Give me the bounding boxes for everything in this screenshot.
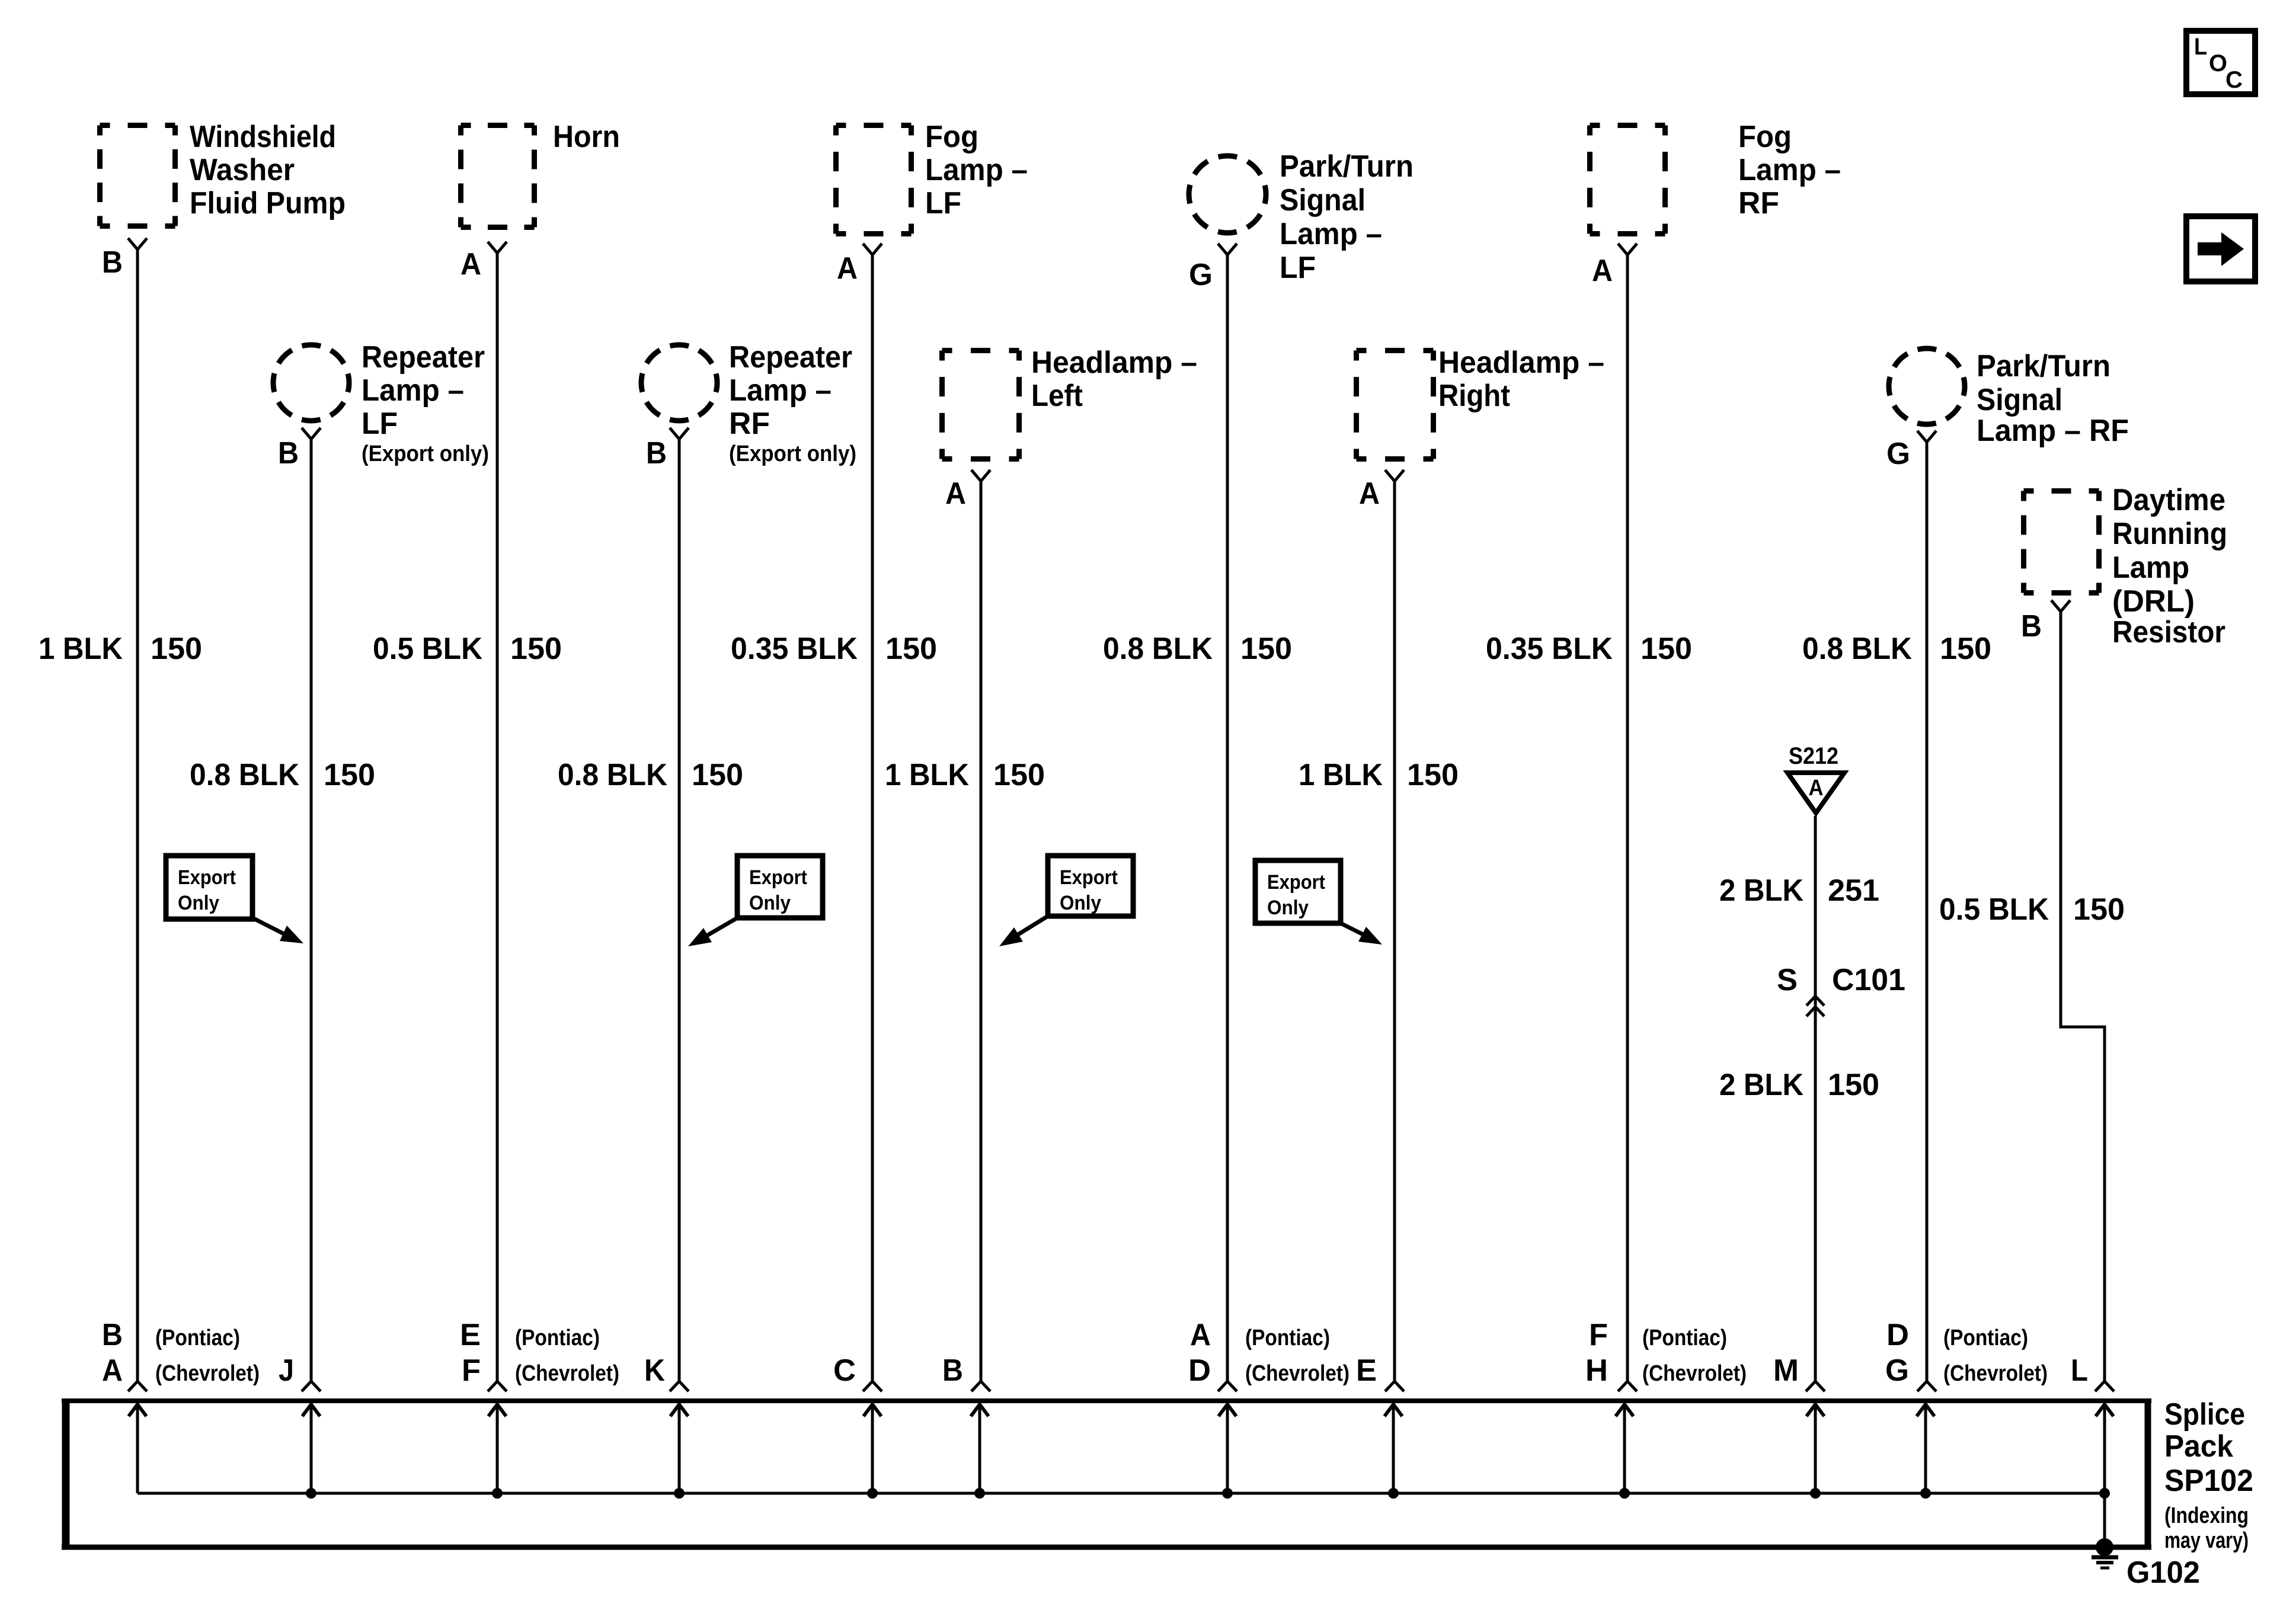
svg-text:150: 150 <box>885 632 937 666</box>
svg-text:A: A <box>837 251 858 286</box>
svg-text:B: B <box>646 436 667 470</box>
svg-text:LF: LF <box>1280 251 1316 285</box>
svg-text:L: L <box>2071 1353 2088 1388</box>
svg-text:0.8 BLK: 0.8 BLK <box>1802 632 1912 666</box>
svg-text:Horn: Horn <box>553 120 620 154</box>
svg-text:Washer: Washer <box>190 153 295 187</box>
svg-text:1 BLK: 1 BLK <box>885 758 969 792</box>
svg-text:150: 150 <box>510 632 562 666</box>
svg-text:A: A <box>945 476 966 511</box>
svg-text:150: 150 <box>1240 632 1292 666</box>
svg-text:(Chevrolet): (Chevrolet) <box>1642 1361 1747 1386</box>
svg-text:150: 150 <box>692 758 743 792</box>
svg-text:251: 251 <box>1828 873 1879 908</box>
svg-text:B: B <box>942 1353 963 1388</box>
svg-text:Windshield: Windshield <box>190 120 336 154</box>
svg-text:Repeater: Repeater <box>729 340 852 375</box>
svg-text:A: A <box>1190 1318 1211 1352</box>
svg-text:Park/Turn: Park/Turn <box>1280 149 1414 184</box>
svg-text:M: M <box>1773 1353 1799 1388</box>
svg-text:Splice: Splice <box>2164 1397 2245 1432</box>
svg-text:(Chevrolet): (Chevrolet) <box>1245 1361 1350 1386</box>
svg-text:Export: Export <box>1060 866 1118 889</box>
svg-text:(Indexing: (Indexing <box>2164 1503 2249 1528</box>
svg-text:2 BLK: 2 BLK <box>1719 1068 1803 1102</box>
svg-text:150: 150 <box>1641 632 1692 666</box>
svg-text:D: D <box>1188 1353 1211 1388</box>
svg-text:(Export only): (Export only) <box>729 441 856 466</box>
svg-text:Left: Left <box>1031 379 1083 413</box>
svg-text:Park/Turn: Park/Turn <box>1977 349 2110 383</box>
svg-text:E: E <box>1356 1353 1377 1388</box>
svg-text:Lamp –: Lamp – <box>1280 217 1382 251</box>
svg-text:H: H <box>1585 1353 1608 1388</box>
svg-text:Only: Only <box>1267 897 1309 919</box>
svg-text:0.35 BLK: 0.35 BLK <box>731 632 858 666</box>
svg-text:(Pontiac): (Pontiac) <box>1245 1326 1330 1350</box>
svg-text:LF: LF <box>925 186 961 220</box>
svg-text:Signal: Signal <box>1977 383 2062 417</box>
svg-text:SP102: SP102 <box>2164 1464 2253 1498</box>
svg-text:1 BLK: 1 BLK <box>1299 758 1383 792</box>
svg-text:G: G <box>1189 258 1213 292</box>
svg-text:LF: LF <box>362 406 398 441</box>
svg-text:S: S <box>1777 963 1798 997</box>
svg-text:D: D <box>1886 1318 1909 1352</box>
svg-text:Repeater: Repeater <box>362 340 485 375</box>
svg-text:RF: RF <box>729 406 770 441</box>
svg-text:(Export only): (Export only) <box>362 441 489 466</box>
svg-text:Fog: Fog <box>925 120 978 154</box>
svg-text:0.35 BLK: 0.35 BLK <box>1486 632 1613 666</box>
svg-text:Only: Only <box>178 892 219 914</box>
svg-text:C: C <box>833 1353 856 1388</box>
svg-text:150: 150 <box>1828 1068 1879 1102</box>
svg-text:A: A <box>1359 476 1380 511</box>
svg-text:Pack: Pack <box>2164 1429 2233 1464</box>
svg-text:Running: Running <box>2112 517 2227 551</box>
svg-text:Lamp –: Lamp – <box>729 373 832 408</box>
svg-text:B: B <box>102 1318 123 1352</box>
svg-text:F: F <box>462 1353 481 1388</box>
svg-text:Only: Only <box>1060 892 1101 914</box>
svg-text:G102: G102 <box>2126 1555 2200 1590</box>
svg-text:Lamp –: Lamp – <box>1738 153 1841 187</box>
svg-text:(Chevrolet): (Chevrolet) <box>515 1361 619 1386</box>
svg-text:RF: RF <box>1738 186 1779 220</box>
svg-text:(Chevrolet): (Chevrolet) <box>1943 1361 2048 1386</box>
svg-text:Lamp – RF: Lamp – RF <box>1977 414 2129 448</box>
svg-text:may vary): may vary) <box>2164 1528 2249 1553</box>
svg-text:B: B <box>278 436 299 470</box>
svg-text:Lamp –: Lamp – <box>362 373 464 408</box>
svg-text:J: J <box>279 1353 294 1388</box>
svg-text:0.5 BLK: 0.5 BLK <box>373 632 482 666</box>
svg-text:Headlamp –: Headlamp – <box>1438 345 1604 380</box>
svg-text:G: G <box>1886 437 1910 471</box>
svg-text:Headlamp –: Headlamp – <box>1031 345 1197 380</box>
svg-text:Export: Export <box>1267 871 1325 894</box>
svg-text:B: B <box>102 245 123 280</box>
svg-text:C101: C101 <box>1832 963 1905 997</box>
svg-text:(Pontiac): (Pontiac) <box>1642 1326 1727 1350</box>
svg-text:150: 150 <box>993 758 1045 792</box>
svg-text:Lamp: Lamp <box>2112 550 2189 585</box>
svg-text:Right: Right <box>1438 379 1510 413</box>
svg-text:Signal: Signal <box>1280 183 1366 217</box>
svg-text:Lamp –: Lamp – <box>925 153 1028 187</box>
svg-text:1 BLK: 1 BLK <box>39 632 123 666</box>
svg-text:S212: S212 <box>1789 743 1838 769</box>
svg-text:Export: Export <box>749 866 807 889</box>
svg-text:Export: Export <box>178 866 236 889</box>
svg-text:Daytime: Daytime <box>2112 483 2225 517</box>
svg-text:E: E <box>460 1318 481 1352</box>
svg-text:G: G <box>1885 1353 1909 1388</box>
svg-text:O: O <box>2209 50 2227 76</box>
svg-text:(Chevrolet): (Chevrolet) <box>155 1361 260 1386</box>
svg-text:A: A <box>461 247 481 281</box>
svg-text:K: K <box>644 1353 665 1388</box>
svg-text:L: L <box>2194 34 2207 60</box>
svg-text:150: 150 <box>1407 758 1459 792</box>
svg-text:150: 150 <box>2073 892 2125 927</box>
svg-text:0.5 BLK: 0.5 BLK <box>1939 892 2049 927</box>
svg-text:(Pontiac): (Pontiac) <box>1943 1326 2028 1350</box>
svg-text:0.8 BLK: 0.8 BLK <box>1103 632 1213 666</box>
svg-text:F: F <box>1589 1318 1608 1352</box>
svg-text:A: A <box>1592 254 1613 288</box>
svg-text:0.8 BLK: 0.8 BLK <box>558 758 667 792</box>
svg-text:Only: Only <box>749 892 791 914</box>
svg-text:(Pontiac): (Pontiac) <box>155 1326 240 1350</box>
svg-text:A: A <box>102 1353 123 1388</box>
svg-text:Resistor: Resistor <box>2112 615 2225 649</box>
svg-text:0.8 BLK: 0.8 BLK <box>190 758 299 792</box>
svg-text:Fog: Fog <box>1738 120 1792 154</box>
svg-text:A: A <box>1809 776 1824 801</box>
svg-text:Fluid Pump: Fluid Pump <box>190 186 346 220</box>
svg-text:(DRL): (DRL) <box>2112 584 2195 619</box>
svg-text:C: C <box>2225 67 2243 93</box>
svg-text:B: B <box>2021 609 2042 644</box>
svg-text:(Pontiac): (Pontiac) <box>515 1326 600 1350</box>
svg-text:150: 150 <box>324 758 375 792</box>
svg-text:150: 150 <box>1940 632 1991 666</box>
svg-text:2 BLK: 2 BLK <box>1719 873 1803 908</box>
svg-text:150: 150 <box>151 632 202 666</box>
